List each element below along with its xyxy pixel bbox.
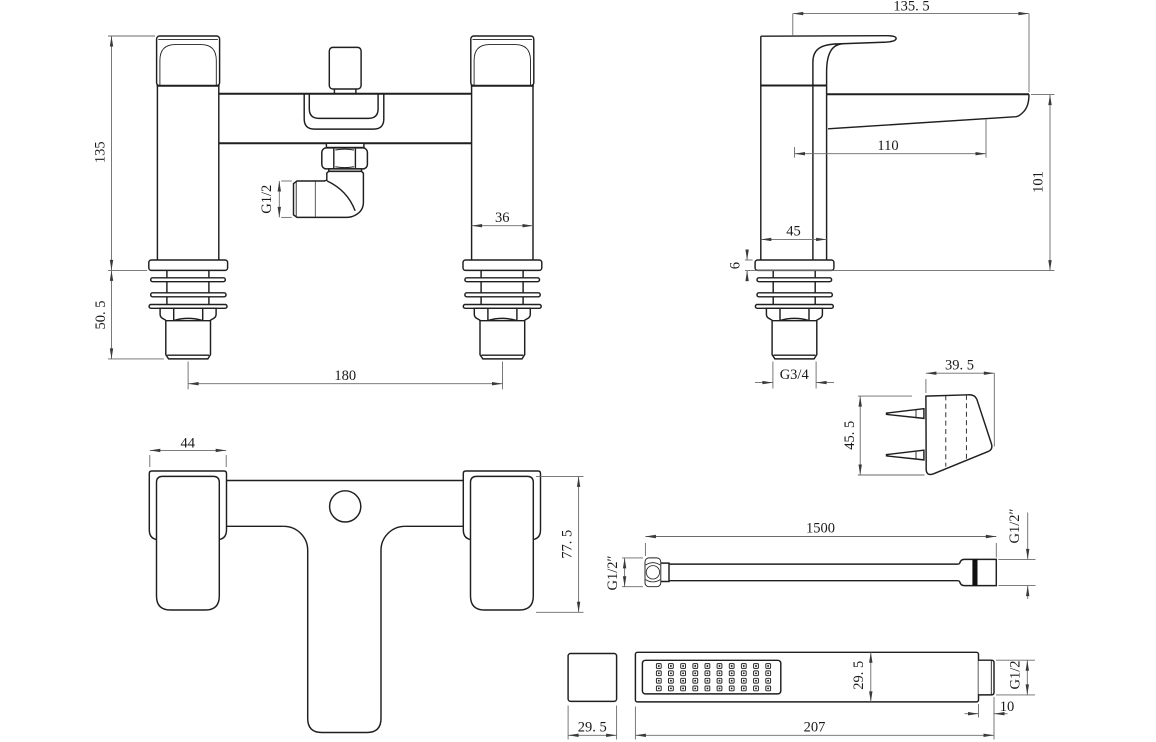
svg-text:10: 10: [1000, 699, 1015, 715]
svg-text:45: 45: [786, 224, 801, 240]
svg-text:110: 110: [877, 138, 898, 154]
svg-text:39. 5: 39. 5: [945, 358, 974, 374]
svg-text:G1/2: G1/2: [259, 185, 275, 214]
svg-text:6: 6: [728, 262, 744, 269]
svg-text:29. 5: 29. 5: [578, 719, 607, 735]
svg-text:135: 135: [93, 141, 109, 163]
svg-text:29. 5: 29. 5: [851, 661, 867, 690]
svg-text:G3/4: G3/4: [780, 367, 810, 383]
svg-text:44: 44: [180, 436, 195, 452]
svg-text:45. 5: 45. 5: [842, 421, 858, 450]
svg-text:77. 5: 77. 5: [559, 530, 575, 559]
svg-text:G1/2″: G1/2″: [1007, 508, 1023, 543]
svg-text:36: 36: [495, 210, 510, 226]
svg-text:G1/2″: G1/2″: [605, 555, 621, 590]
svg-text:135. 5: 135. 5: [893, 0, 929, 15]
svg-text:207: 207: [804, 719, 826, 735]
svg-text:G1/2: G1/2: [1008, 661, 1024, 690]
svg-text:180: 180: [334, 368, 356, 384]
svg-text:1500: 1500: [806, 521, 835, 537]
svg-text:50. 5: 50. 5: [93, 301, 109, 330]
svg-text:101: 101: [1030, 171, 1046, 193]
